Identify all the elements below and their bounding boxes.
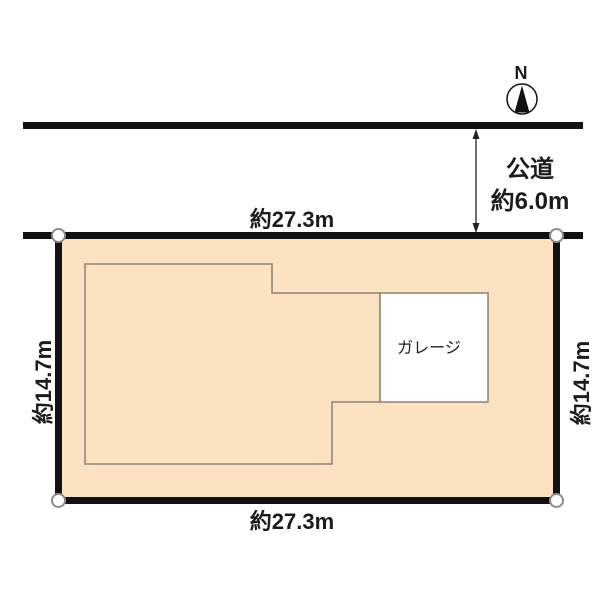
corner-marker-bottom-left: [52, 494, 65, 507]
lot-right-depth-label: 約14.7m: [569, 341, 594, 425]
road-width-label: 約6.0m: [491, 187, 570, 215]
road-upper-edge-line: [23, 122, 583, 129]
compass: N: [507, 63, 537, 114]
arrow-down-icon: [473, 223, 480, 233]
north-label: N: [515, 63, 528, 83]
lot-left-depth-label: 約14.7m: [31, 340, 56, 424]
lot-bottom-width-label: 約27.3m: [250, 509, 334, 534]
road-name-label: 公道: [506, 155, 554, 183]
corner-marker-bottom-right: [550, 494, 563, 507]
arrow-up-icon: [473, 129, 480, 139]
lot-parcel: ガレージ 約27.3m 約27.3m 約14.7m 約14.7m: [31, 207, 594, 534]
garage: ガレージ: [380, 293, 488, 402]
corner-marker-top-right: [550, 229, 563, 242]
site-plan-diagram: 公道 約6.0m N ガレージ 約27.3m 約2: [0, 0, 600, 600]
road-width-dimension: [473, 129, 480, 233]
garage-label: ガレージ: [397, 339, 461, 357]
corner-marker-top-left: [52, 229, 65, 242]
lot-top-width-label: 約27.3m: [250, 207, 334, 232]
site-plan-svg: 公道 約6.0m N ガレージ 約27.3m 約2: [0, 0, 600, 600]
